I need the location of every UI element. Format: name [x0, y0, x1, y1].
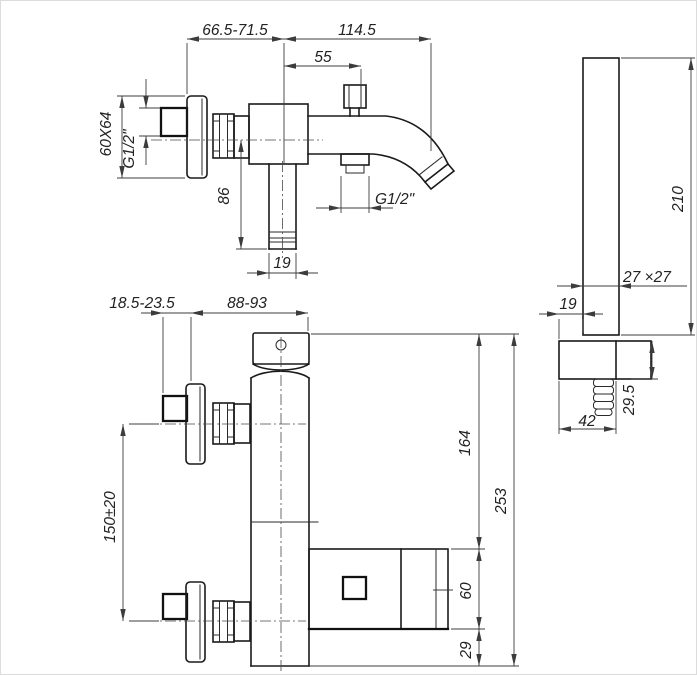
dim-shower-outlet-thread: G1/2" [375, 191, 416, 208]
spout [308, 116, 454, 189]
dim-handle-section: 27 ×27 [622, 269, 672, 286]
top-ring [234, 116, 249, 158]
dim-bracket-height: 29.5 [621, 385, 638, 417]
top-view-dimensions: 66.5-71.5 114.5 55 60X64 G1/2" 86 19 G1/… [98, 22, 431, 279]
handshower-handle [583, 58, 619, 335]
dim-spout-reach: 114.5 [338, 22, 376, 39]
dim-inlet-spacing: 150±20 [102, 491, 119, 543]
handshower-head [559, 341, 651, 379]
top-view: 66.5-71.5 114.5 55 60X64 G1/2" 86 19 G1/… [98, 22, 454, 279]
lower-block [309, 549, 453, 629]
dim-wall-projection: 66.5-71.5 [202, 22, 268, 39]
diverter-button [343, 577, 366, 599]
dim-head-depth: 42 [578, 413, 596, 430]
diverter-knob [344, 85, 366, 116]
dim-pipe-width: 19 [273, 255, 291, 272]
side-view-dimensions: 210 27 ×27 19 29.5 42 [539, 58, 695, 434]
front-view-dimensions: 18.5-23.5 88-93 150±20 164 60 29 253 [102, 295, 519, 666]
dim-block-height: 60 [458, 582, 475, 600]
dim-head-offset: 19 [559, 296, 577, 313]
mixer-dimension-drawing: 66.5-71.5 114.5 55 60X64 G1/2" 86 19 G1/… [1, 1, 697, 675]
front-view: 18.5-23.5 88-93 150±20 164 60 29 253 [102, 295, 519, 671]
side-view-handshower: 210 27 ×27 19 29.5 42 [539, 58, 695, 434]
dim-upper-height: 164 [457, 430, 474, 456]
dim-foot-height: 29 [458, 641, 475, 660]
dim-inlet-thread: G1/2" [121, 128, 138, 169]
front-handle [251, 333, 309, 378]
lower-wall-union [163, 582, 250, 662]
dim-drop-height: 86 [216, 187, 233, 205]
dim-escutcheon-size: 60X64 [98, 111, 115, 156]
hose-connector-ribs [594, 379, 614, 416]
dim-diverter-offset: 55 [314, 49, 332, 66]
top-escutcheon [187, 96, 207, 178]
dim-wall-adjust-range: 18.5-23.5 [109, 295, 175, 312]
dim-handshower-length: 210 [670, 186, 687, 213]
dim-body-projection: 88-93 [227, 295, 267, 312]
top-valve-body [249, 104, 308, 164]
shower-outlet-port [341, 154, 369, 173]
technical-drawing-sheet: 66.5-71.5 114.5 55 60X64 G1/2" 86 19 G1/… [0, 0, 697, 675]
top-wall-stub [161, 108, 187, 136]
dim-total-height: 253 [493, 488, 510, 515]
